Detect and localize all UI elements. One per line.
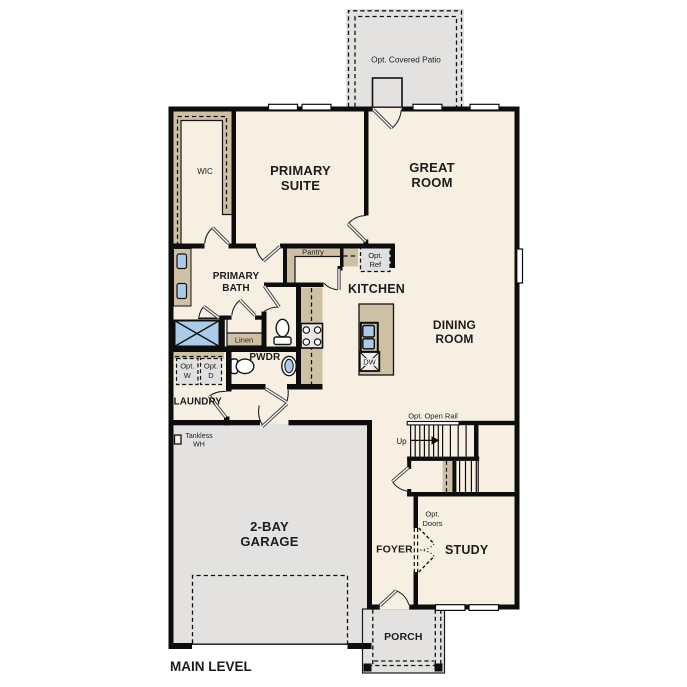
svg-text:W: W: [184, 371, 192, 380]
svg-text:D: D: [208, 371, 214, 380]
svg-text:Opt.: Opt.: [204, 362, 218, 371]
svg-text:GARAGE: GARAGE: [240, 534, 298, 549]
svg-text:ROOM: ROOM: [411, 175, 452, 190]
svg-text:Opt.: Opt.: [368, 251, 382, 260]
svg-text:MAIN LEVEL: MAIN LEVEL: [170, 659, 252, 674]
svg-text:PRIMARY: PRIMARY: [270, 163, 331, 178]
svg-text:DINING: DINING: [433, 318, 476, 332]
svg-text:STUDY: STUDY: [445, 543, 489, 557]
svg-text:2-BAY: 2-BAY: [250, 519, 289, 534]
svg-text:ROOM: ROOM: [435, 332, 473, 346]
svg-text:Opt. Covered Patio: Opt. Covered Patio: [371, 55, 441, 64]
svg-text:LAUNDRY: LAUNDRY: [174, 396, 223, 407]
svg-text:Opt.: Opt.: [180, 362, 194, 371]
svg-text:BATH: BATH: [222, 283, 249, 294]
svg-text:DW: DW: [363, 358, 376, 367]
svg-text:SUITE: SUITE: [281, 178, 320, 193]
svg-text:Opt. Open Rail: Opt. Open Rail: [408, 411, 458, 420]
svg-text:GREAT: GREAT: [409, 160, 455, 175]
svg-text:Tankless: Tankless: [185, 433, 213, 440]
svg-text:PORCH: PORCH: [384, 631, 422, 643]
svg-text:Ref: Ref: [369, 260, 382, 269]
svg-text:PRIMARY: PRIMARY: [213, 271, 260, 282]
svg-text:WIC: WIC: [197, 167, 213, 176]
svg-text:Opt.: Opt.: [425, 510, 439, 519]
svg-text:Doors: Doors: [422, 519, 442, 528]
svg-text:KITCHEN: KITCHEN: [348, 282, 405, 296]
svg-text:FOYER: FOYER: [376, 543, 413, 555]
svg-text:Linen: Linen: [235, 336, 253, 345]
svg-text:WH: WH: [193, 441, 205, 448]
svg-text:Up: Up: [396, 437, 407, 446]
svg-text:Pantry: Pantry: [302, 248, 324, 257]
svg-text:PWDR: PWDR: [249, 352, 281, 363]
